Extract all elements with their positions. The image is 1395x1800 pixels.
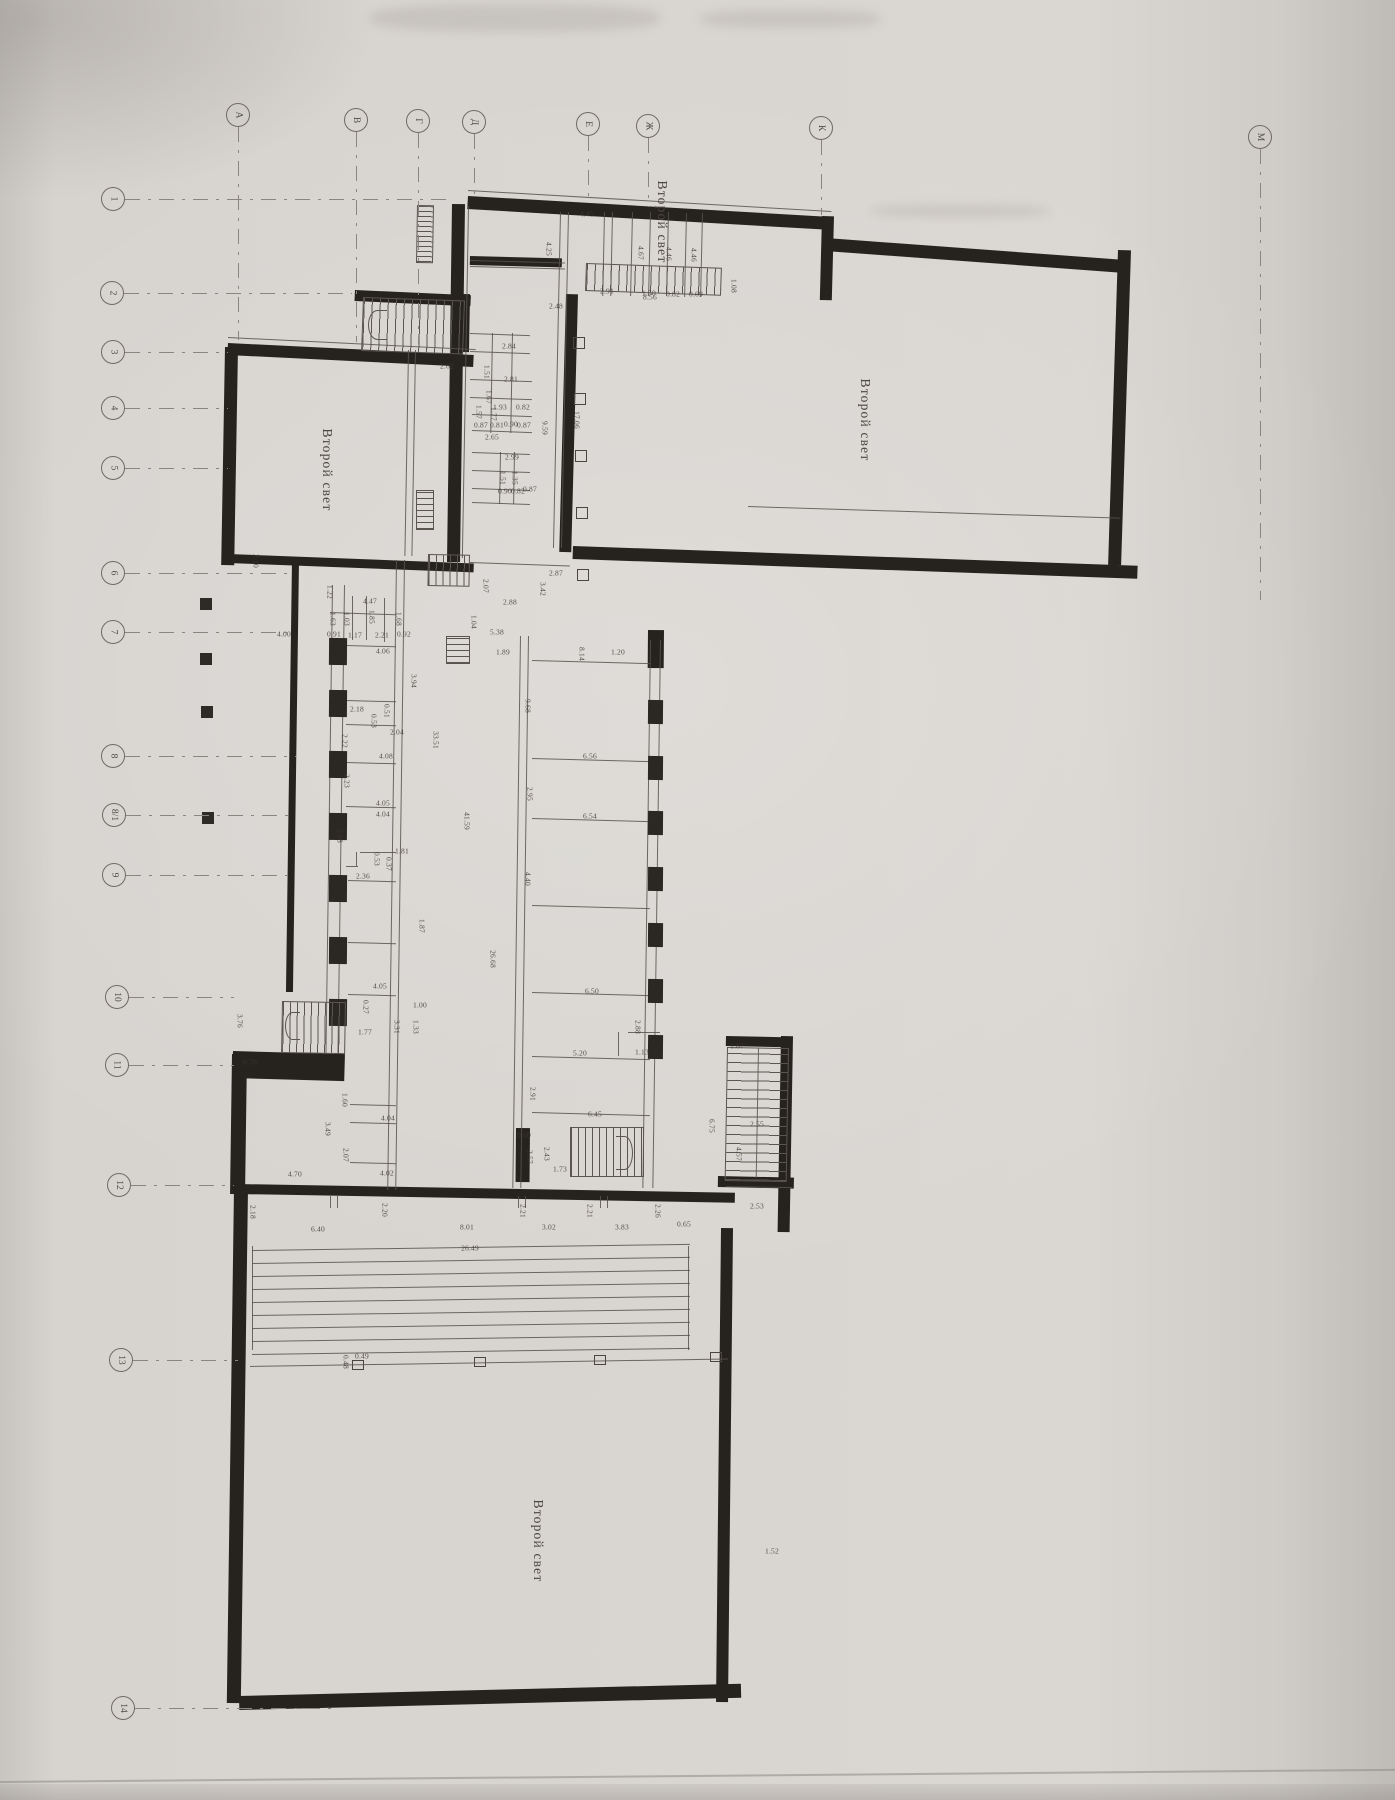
dimension-label: 3.42 bbox=[539, 582, 548, 596]
dimension-label: 1.13 bbox=[635, 1048, 649, 1057]
dimension-label: 0.53 bbox=[370, 714, 379, 728]
wall-segment bbox=[221, 347, 238, 565]
dimension-label: 4.57 bbox=[735, 1147, 744, 1161]
dimension-label: 6.75 bbox=[708, 1119, 717, 1133]
axis-bubble-number: 7 bbox=[101, 620, 125, 644]
axis-number-text: 8/1 bbox=[109, 809, 119, 821]
dimension-label: 1.68 bbox=[395, 612, 404, 626]
window-pier bbox=[329, 690, 347, 717]
dimension-label: 6.54 bbox=[583, 812, 597, 821]
partition-line bbox=[520, 636, 529, 1188]
dimension-label: 1.51 bbox=[483, 365, 492, 379]
dimension-label: 2.87 bbox=[549, 569, 563, 578]
window-pier bbox=[648, 867, 663, 891]
dimension-label: 1.73 bbox=[553, 1165, 567, 1174]
partition-line bbox=[512, 636, 521, 1188]
room-label: Второй свет bbox=[654, 181, 670, 264]
dimension-label: 4.04 bbox=[381, 1114, 395, 1123]
dimension-label: 3.31 bbox=[393, 1020, 402, 1034]
axis-number-text: 1 bbox=[108, 197, 118, 202]
axis-line-vertical bbox=[821, 140, 822, 215]
column-marker bbox=[575, 450, 587, 462]
bleacher-line bbox=[252, 1296, 690, 1303]
dimension-label: 2.48 bbox=[549, 302, 563, 311]
column-pier bbox=[202, 812, 214, 824]
stair-flight bbox=[416, 490, 434, 530]
wall-segment bbox=[286, 560, 299, 992]
dimension-label: 1.08 bbox=[730, 279, 739, 293]
axis-number-text: 13 bbox=[116, 1355, 126, 1365]
axis-line-horizontal bbox=[135, 1708, 335, 1709]
dimension-label: 2.88 bbox=[634, 1020, 643, 1034]
bleacher-line bbox=[252, 1335, 690, 1342]
axis-letter-text: Г bbox=[413, 118, 423, 124]
partition-line bbox=[348, 994, 396, 996]
partition-line bbox=[532, 660, 650, 664]
axis-letter-text: Ж bbox=[643, 122, 653, 131]
axis-bubble-number: 3 bbox=[101, 340, 125, 364]
axis-bubble-number: 4 bbox=[101, 396, 125, 420]
dimension-label: 0.82 bbox=[516, 403, 530, 412]
dimension-label: 0.82 bbox=[666, 290, 680, 299]
dimension-label: 2.21 bbox=[586, 1204, 595, 1218]
dimension-label: 2.04 bbox=[390, 728, 404, 737]
dimension-label: 9.59 bbox=[541, 421, 550, 435]
stair-flight bbox=[446, 636, 470, 664]
dimension-label: 2.18 bbox=[249, 1205, 258, 1219]
partition-line bbox=[607, 1196, 608, 1208]
dimension-label: 4.06 bbox=[376, 647, 390, 656]
window-pier bbox=[648, 923, 663, 947]
window-pier bbox=[329, 875, 347, 902]
dimension-label: 2.21 bbox=[375, 631, 389, 640]
window-pier bbox=[648, 811, 663, 835]
dimension-label: 4.05 bbox=[376, 799, 390, 808]
dimension-label: 0.69 bbox=[689, 290, 703, 299]
partition-line bbox=[346, 762, 396, 764]
partition-line bbox=[252, 1246, 253, 1350]
dimension-label: 6.45 bbox=[588, 1110, 602, 1119]
dimension-label: 2.23 bbox=[343, 774, 352, 788]
window-pier bbox=[329, 937, 347, 964]
axis-line-horizontal bbox=[129, 997, 234, 998]
dimension-label: 2.36 bbox=[356, 872, 370, 881]
partition-line bbox=[472, 430, 532, 433]
dimension-label: 4.67 bbox=[637, 246, 646, 260]
axis-line-horizontal bbox=[125, 408, 228, 409]
dimension-label: 2.81 bbox=[504, 375, 518, 384]
dimension-label: 2.91 bbox=[600, 287, 614, 296]
dimension-label: 9.68 bbox=[524, 699, 533, 713]
stair-flight bbox=[725, 1047, 789, 1182]
dimension-label: 1.89 bbox=[496, 648, 510, 657]
axis-number-text: 14 bbox=[118, 1703, 128, 1713]
dimension-label: 0.60 bbox=[517, 1131, 531, 1140]
axis-bubble-letter: Е bbox=[576, 112, 600, 136]
dimension-label: 2.91 bbox=[529, 1087, 538, 1101]
dimension-label: 3.94 bbox=[410, 674, 419, 688]
axis-bubble-letter: К bbox=[809, 116, 833, 140]
axis-line-horizontal bbox=[125, 632, 292, 633]
partition-line bbox=[356, 852, 357, 866]
dimension-label: 3.49 bbox=[324, 1122, 333, 1136]
axis-letter-text: А bbox=[233, 112, 243, 119]
partition-line bbox=[395, 560, 405, 1190]
door-post-marker bbox=[710, 1352, 722, 1362]
axis-number-text: 12 bbox=[114, 1180, 124, 1190]
partition-line bbox=[472, 502, 530, 505]
column-pier bbox=[200, 598, 212, 610]
axis-bubble-number: 1 bbox=[101, 187, 125, 211]
dimension-label: 26.68 bbox=[489, 950, 498, 968]
dimension-label: 1.60 bbox=[341, 1093, 350, 1107]
column-pier bbox=[201, 706, 213, 718]
dimension-label: 4.46 bbox=[690, 248, 699, 262]
axis-line-vertical bbox=[648, 138, 649, 207]
dimension-label: 2.99 bbox=[505, 453, 519, 462]
axis-line-horizontal bbox=[125, 468, 228, 469]
window-pier bbox=[648, 756, 663, 780]
scan-bleedthrough bbox=[870, 205, 1050, 217]
dimension-label: 2.62 bbox=[440, 362, 454, 371]
scale-note: 1.52 bbox=[765, 1547, 779, 1556]
dimension-label: 1.17 bbox=[348, 631, 362, 640]
dimension-label: 5.38 bbox=[490, 628, 504, 637]
window-pier bbox=[648, 1035, 663, 1059]
dimension-label: 1.85 bbox=[368, 610, 377, 624]
dimension-label: 2.18 bbox=[350, 705, 364, 714]
dimension-label: 4.70 bbox=[288, 1170, 302, 1179]
dimension-label: 0.48 bbox=[342, 1355, 351, 1369]
axis-line-horizontal bbox=[124, 293, 352, 294]
axis-bubble-letter: Д bbox=[462, 110, 486, 134]
column-marker bbox=[573, 337, 585, 349]
axis-line-horizontal bbox=[126, 875, 296, 876]
dimension-label: 6.50 bbox=[585, 987, 599, 996]
axis-line-horizontal bbox=[131, 1185, 234, 1186]
axis-bubble-number: 14 bbox=[111, 1696, 135, 1720]
dimension-label: 1.33 bbox=[412, 1020, 421, 1034]
dimension-label: 1.22 bbox=[326, 585, 335, 599]
dimension-label: 0.81 bbox=[490, 421, 504, 430]
dimension-label: 2.55 bbox=[750, 1120, 764, 1129]
dimension-label: 2.88 bbox=[503, 598, 517, 607]
stair-turn-guide bbox=[368, 310, 387, 340]
axis-bubble-letter: А bbox=[226, 103, 250, 127]
scan-bleedthrough bbox=[700, 10, 880, 28]
axis-number-text: 3 bbox=[108, 350, 118, 355]
dimension-label: 0.53 bbox=[373, 852, 382, 866]
dimension-label: 2.07 bbox=[342, 1148, 351, 1162]
axis-number-text: 11 bbox=[112, 1060, 122, 1069]
dimension-label: 2.22 bbox=[341, 734, 350, 748]
room-label: Второй свет bbox=[319, 429, 335, 512]
partition-line bbox=[618, 1032, 619, 1056]
bleacher-line bbox=[252, 1270, 690, 1277]
partition-line bbox=[346, 700, 396, 702]
dimension-label: 1.51 bbox=[499, 471, 508, 485]
floorplan-drawing: 4.454.254.674.464.462.911.500.820.698.56… bbox=[0, 0, 1395, 1800]
axis-line-vertical bbox=[474, 134, 475, 200]
axis-letter-text: К bbox=[816, 125, 826, 131]
dimension-label: 2.20 bbox=[381, 1203, 390, 1217]
dimension-label: 6.40 bbox=[311, 1225, 325, 1234]
page-edge-line bbox=[0, 1769, 1395, 1783]
axis-line-vertical bbox=[356, 132, 357, 342]
dimension-label: 6.56 bbox=[583, 752, 597, 761]
stair-turn-guide bbox=[616, 1136, 633, 1170]
axis-bubble-letter: В bbox=[344, 108, 368, 132]
column-marker bbox=[576, 507, 588, 519]
dimension-label: 4.47 bbox=[363, 597, 377, 606]
dimension-label: 0.90 bbox=[504, 420, 518, 429]
axis-number-text: 8 bbox=[108, 754, 118, 759]
dimension-label: 2.26 bbox=[654, 1204, 663, 1218]
page-bottom-shadow bbox=[0, 1784, 1395, 1800]
partition-line bbox=[748, 506, 1120, 519]
axis-number-text: 4 bbox=[108, 406, 118, 411]
scan-bleedthrough bbox=[370, 4, 660, 32]
partition-line bbox=[470, 351, 530, 354]
dimension-label: 1.57 bbox=[475, 405, 484, 419]
dimension-label: 2.57 bbox=[526, 1150, 535, 1164]
wall-segment bbox=[237, 1184, 735, 1203]
axis-letter-text: В bbox=[351, 117, 361, 123]
wall-segment bbox=[239, 1684, 741, 1710]
partition-line bbox=[470, 379, 532, 382]
dimension-label: 4.05 bbox=[373, 982, 387, 991]
partition-line bbox=[337, 1196, 338, 1208]
dimension-label: 0.92 bbox=[397, 630, 411, 639]
axis-line-vertical bbox=[418, 133, 419, 344]
stair-turn-guide bbox=[285, 1012, 300, 1040]
dimension-label: 2.10 bbox=[252, 554, 261, 568]
partition-line bbox=[600, 1196, 601, 1208]
axis-number-text: 9 bbox=[109, 873, 119, 878]
dimension-label: 1.77 bbox=[358, 1028, 372, 1037]
dimension-label: 1.87 bbox=[418, 919, 427, 933]
dimension-label: 4.25 bbox=[545, 242, 554, 256]
axis-letter-text: М bbox=[1255, 133, 1265, 141]
axis-bubble-letter: Г bbox=[406, 109, 430, 133]
dimension-label: 0.37 bbox=[385, 857, 394, 871]
dimension-label: 2.65 bbox=[485, 433, 499, 442]
dimension-label: 0.87 bbox=[517, 421, 531, 430]
axis-bubble-number: 9 bbox=[102, 863, 126, 887]
dimension-label: 0.87 bbox=[474, 421, 488, 430]
axis-bubble-number: 8/1 bbox=[102, 803, 126, 827]
window-pier bbox=[648, 979, 663, 1003]
dimension-label: 1.00 bbox=[413, 1001, 427, 1010]
dimension-label: 0.49 bbox=[355, 1352, 369, 1361]
axis-number-text: 10 bbox=[112, 992, 122, 1002]
dimension-label: 1.63 bbox=[329, 612, 338, 626]
axis-line-horizontal bbox=[126, 815, 296, 816]
dimension-label: 0.27 bbox=[362, 1000, 371, 1014]
dimension-label: 2.95 bbox=[526, 787, 535, 801]
axis-line-vertical bbox=[588, 136, 589, 203]
axis-line-horizontal bbox=[125, 199, 452, 200]
axis-bubble-letter: М bbox=[1248, 125, 1272, 149]
dimension-label: 8.56 bbox=[643, 293, 657, 302]
axis-bubble-number: 10 bbox=[105, 985, 129, 1009]
dimension-label: 0.91 bbox=[327, 630, 341, 639]
axis-line-horizontal bbox=[125, 573, 292, 574]
dimension-label: 1.77 bbox=[490, 407, 499, 421]
dimension-label: 2.53 bbox=[750, 1202, 764, 1211]
axis-line-horizontal bbox=[125, 352, 228, 353]
bleacher-line bbox=[252, 1309, 690, 1316]
dimension-label: 0.76 bbox=[243, 1058, 257, 1067]
dimension-label: 4.40 bbox=[524, 872, 533, 886]
bleacher-line bbox=[252, 1257, 690, 1264]
partition-line bbox=[470, 397, 532, 400]
dimension-label: 33.51 bbox=[432, 731, 441, 749]
axis-number-text: 7 bbox=[108, 630, 118, 635]
axis-line-vertical bbox=[1260, 149, 1261, 600]
partition-line bbox=[470, 333, 530, 336]
dimension-label: 3.02 bbox=[542, 1223, 556, 1232]
bleacher-line bbox=[252, 1322, 690, 1329]
axis-bubble-number: 8 bbox=[101, 744, 125, 768]
column-marker bbox=[577, 569, 589, 581]
dimension-label: 8.14 bbox=[578, 647, 587, 661]
axis-bubble-number: 13 bbox=[109, 1348, 133, 1372]
axis-bubble-number: 5 bbox=[101, 456, 125, 480]
wall-segment bbox=[227, 1188, 248, 1703]
axis-bubble-number: 12 bbox=[107, 1173, 131, 1197]
dimension-label: 41.59 bbox=[463, 812, 472, 830]
axis-number-text: 6 bbox=[108, 571, 118, 576]
stair-flight bbox=[427, 554, 470, 587]
bleacher-line bbox=[252, 1283, 690, 1290]
dimension-label: 4.00 bbox=[277, 630, 291, 639]
axis-bubble-number: 11 bbox=[105, 1053, 129, 1077]
partition-line bbox=[348, 942, 396, 944]
dimension-label: 0.65 bbox=[677, 1220, 691, 1229]
partition-line bbox=[404, 350, 409, 556]
axis-line-horizontal bbox=[133, 1360, 238, 1361]
axis-number-text: 2 bbox=[107, 291, 117, 296]
wall-segment bbox=[825, 238, 1127, 273]
dimension-label: 3.83 bbox=[615, 1223, 629, 1232]
dimension-label: 1.35 bbox=[511, 471, 520, 485]
column-pier bbox=[200, 653, 212, 665]
dimension-label: 17.06 bbox=[573, 411, 582, 429]
axis-bubble-number: 2 bbox=[100, 281, 124, 305]
axis-letter-text: Е bbox=[583, 121, 593, 127]
dimension-label: 3.76 bbox=[236, 1014, 245, 1028]
dimension-label: 4.08 bbox=[379, 752, 393, 761]
dimension-label: 4.45 bbox=[580, 210, 594, 219]
window-pier bbox=[648, 700, 663, 724]
partition-line bbox=[346, 866, 358, 867]
partition-line bbox=[470, 562, 570, 566]
dimension-label: 4.02 bbox=[380, 1169, 394, 1178]
bleacher-line bbox=[252, 1348, 690, 1355]
dimension-label: 2.68 bbox=[336, 829, 345, 843]
axis-number-text: 5 bbox=[108, 466, 118, 471]
dimension-label: 4.04 bbox=[376, 810, 390, 819]
axis-letter-text: Д bbox=[469, 119, 479, 125]
dimension-label: 2.43 bbox=[543, 1147, 552, 1161]
column-marker bbox=[574, 393, 586, 405]
axis-line-horizontal bbox=[129, 1065, 234, 1066]
dimension-label: 0.51 bbox=[383, 704, 392, 718]
room-label: Второй свет bbox=[530, 1500, 546, 1583]
dimension-label: 5.20 bbox=[573, 1049, 587, 1058]
partition-line bbox=[350, 1104, 396, 1106]
bleacher-bottom-line bbox=[250, 1358, 728, 1367]
dimension-label: 1.81 bbox=[395, 847, 409, 856]
dimension-label: 2.84 bbox=[502, 342, 516, 351]
dimension-label: 2.21 bbox=[519, 1204, 528, 1218]
partition-line bbox=[532, 905, 650, 909]
dimension-label: 1.04 bbox=[470, 615, 479, 629]
dimension-label: 2.07 bbox=[482, 579, 491, 593]
partition-line bbox=[330, 1196, 331, 1208]
dimension-label: 1.03 bbox=[343, 612, 352, 626]
axis-bubble-letter: Ж bbox=[636, 114, 660, 138]
partition-line bbox=[330, 612, 396, 615]
wall-segment bbox=[230, 1054, 247, 1194]
dimension-label: 8.01 bbox=[460, 1223, 474, 1232]
dimension-label: 1.67 bbox=[730, 1042, 744, 1051]
wall-segment bbox=[820, 216, 834, 300]
partition-line bbox=[350, 1162, 396, 1164]
partition-line bbox=[532, 1056, 650, 1060]
dimension-label: 0.87 bbox=[523, 485, 537, 494]
room-label: Второй свет bbox=[857, 379, 873, 462]
window-pier bbox=[329, 638, 347, 665]
wall-segment bbox=[573, 546, 1138, 579]
scanned-floorplan-photo: 4.454.254.674.464.462.911.500.820.698.56… bbox=[0, 0, 1395, 1800]
wall-segment bbox=[716, 1228, 733, 1702]
axis-line-vertical bbox=[238, 127, 239, 340]
axis-line-horizontal bbox=[125, 756, 296, 757]
axis-bubble-number: 6 bbox=[101, 561, 125, 585]
dimension-label: 26.49 bbox=[461, 1244, 479, 1253]
dimension-label: 1.20 bbox=[611, 648, 625, 657]
dimension-label: 0.90 bbox=[498, 487, 512, 496]
